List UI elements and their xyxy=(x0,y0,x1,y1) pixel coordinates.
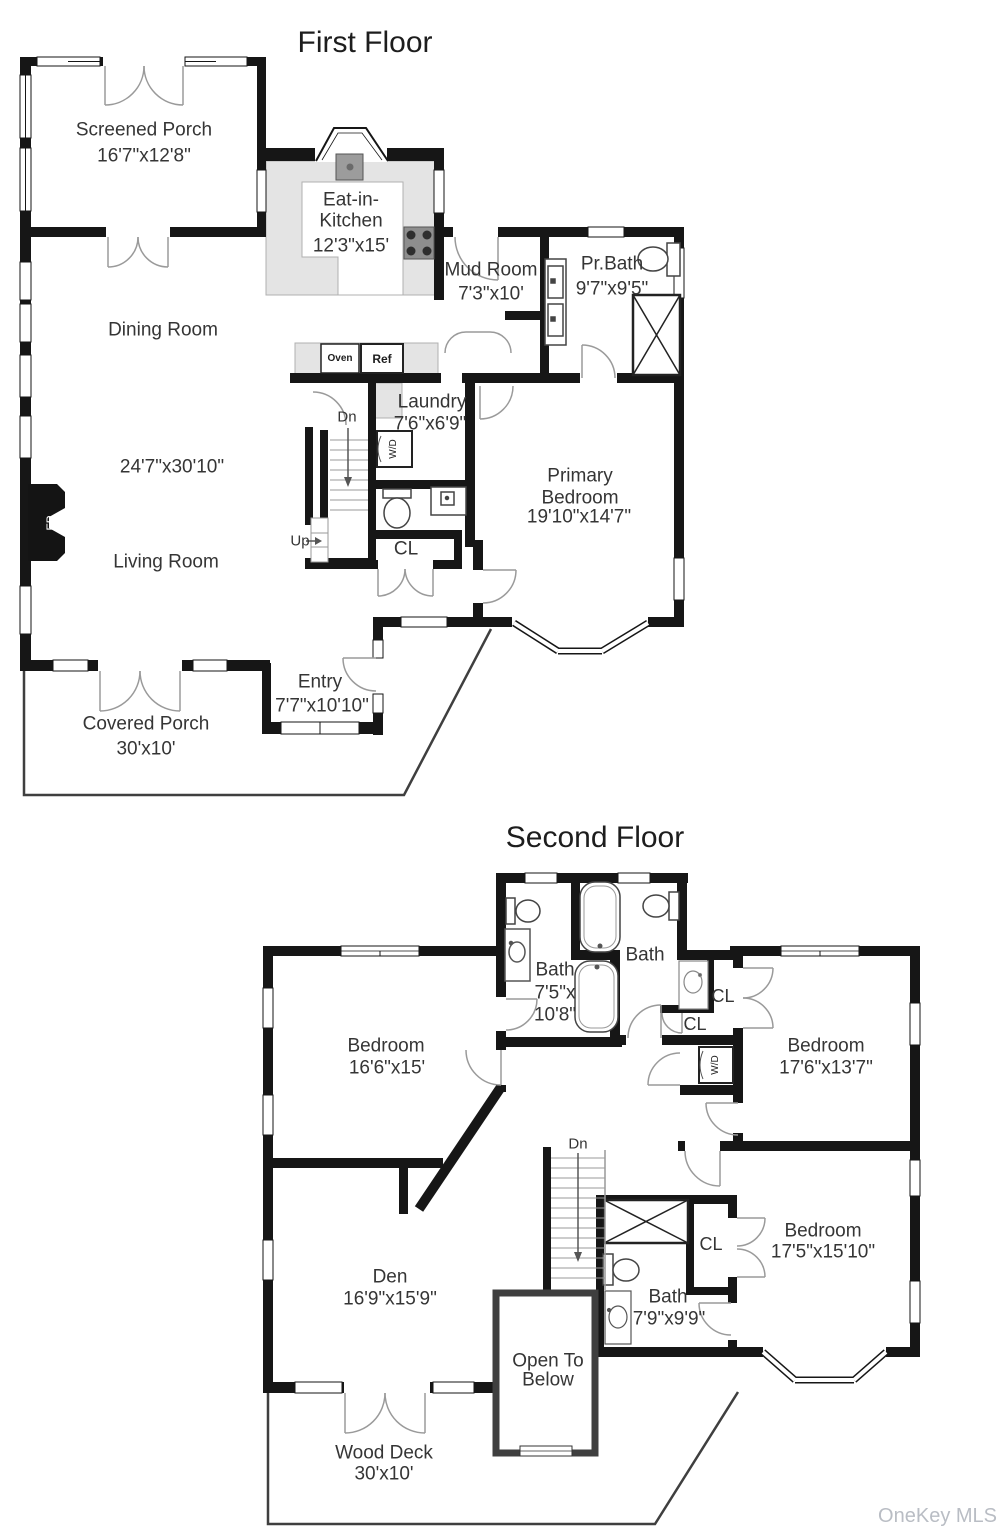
bedroom3-label: Bedroom xyxy=(784,1222,861,1241)
closet-label-first: CL xyxy=(394,540,418,559)
oven-label: Oven xyxy=(327,354,352,364)
den-label: Den xyxy=(373,1268,408,1287)
closet-label-c: CL xyxy=(699,1235,722,1253)
washer-dryer-label-second: W/D xyxy=(711,1055,721,1074)
watermark: OneKey MLS xyxy=(878,1506,997,1526)
covered-porch-outline xyxy=(24,629,491,795)
closet-label-b: CL xyxy=(683,1015,706,1033)
entry-label: Entry xyxy=(298,673,342,692)
bath1-tub-icon xyxy=(575,961,618,1032)
bath3-toilet-icon xyxy=(603,1254,639,1285)
stairs-down-label-first: Dn xyxy=(337,410,356,425)
bedroom2-dims: 17'6"x13'7" xyxy=(779,1059,873,1078)
bath1-dims-line2: 10'8" xyxy=(534,1006,576,1025)
second-floor-title: Second Floor xyxy=(506,823,684,853)
wood-deck-dims: 30'x10' xyxy=(354,1465,413,1484)
second-floor xyxy=(263,873,920,1524)
covered-porch-label: Covered Porch xyxy=(83,715,210,734)
den-dims: 16'9"x15'9" xyxy=(343,1290,437,1309)
screened-porch-label: Screened Porch xyxy=(76,121,212,140)
primary-bath-dims: 9'7"x9'5" xyxy=(576,280,649,299)
bedroom2-label: Bedroom xyxy=(787,1037,864,1056)
wood-deck-label: Wood Deck xyxy=(335,1444,433,1463)
washer-dryer-label-first: W/D xyxy=(389,439,399,458)
fireplace-label: FP xyxy=(45,515,57,530)
bath3-sink-icon xyxy=(605,1291,631,1344)
stairs-down-label-second: Dn xyxy=(568,1137,587,1152)
covered-porch-dims: 30'x10' xyxy=(116,740,175,759)
bedroom1-dims: 16'6"x15' xyxy=(349,1059,425,1078)
bay-window-bedroom3 xyxy=(763,1352,886,1380)
bath3-shower-icon xyxy=(604,1200,688,1243)
hall-sink-icon xyxy=(679,961,708,1009)
bedroom1-angled-wall xyxy=(419,1087,501,1209)
entry-dims: 7'7"x10'10" xyxy=(275,697,369,716)
bedroom3-dims: 17'5"x15'10" xyxy=(771,1243,875,1262)
closet-label-a: CL xyxy=(711,987,734,1005)
half-bath-sink-icon xyxy=(431,487,466,515)
laundry-label: Laundry xyxy=(398,393,467,412)
first-floor-title: First Floor xyxy=(298,28,433,58)
bath1-toilet-icon xyxy=(506,898,540,924)
primary-bath-vanity-icon xyxy=(545,259,566,345)
mud-room-label: Mud Room xyxy=(445,261,538,280)
laundry-dims: 7'6"x6'9" xyxy=(394,415,467,434)
kitchen-label-line1: Eat-in- xyxy=(323,191,379,210)
floor-plan-drawing xyxy=(0,0,1006,1536)
kitchen-dims: 12'3"x15' xyxy=(313,237,389,256)
bath3-label: Bath xyxy=(648,1288,687,1307)
mud-room-dims: 7'3"x10' xyxy=(458,285,524,304)
stairs-first-floor xyxy=(306,428,368,562)
primary-bath-label: Pr.Bath xyxy=(581,255,643,274)
primary-bedroom-label-line2: Bedroom xyxy=(541,489,618,508)
bath2-label: Bath xyxy=(625,946,664,965)
living-room-label: Living Room xyxy=(113,553,219,572)
open-to-below-line1: Open To xyxy=(512,1352,583,1371)
primary-bedroom-dims: 19'10"x14'7" xyxy=(527,508,631,527)
bath1-dims-line1: 7'5"x xyxy=(534,984,575,1003)
half-bath-toilet-icon xyxy=(383,489,411,528)
dining-room-label: Dining Room xyxy=(108,321,218,340)
floor-plan-page: First Floor Screened Porch 16'7"x12'8" E… xyxy=(0,0,1006,1536)
bath3-dims: 7'9"x9'9" xyxy=(633,1310,706,1329)
bath2-toilet-icon xyxy=(643,892,679,920)
stairs-up-label-first: Up xyxy=(290,534,309,549)
primary-shower-icon xyxy=(633,295,680,375)
bath1-vanity-icon xyxy=(505,929,530,981)
primary-bath-toilet-icon xyxy=(638,243,680,276)
kitchen-label-line2: Kitchen xyxy=(319,212,382,231)
screened-porch-dims: 16'7"x12'8" xyxy=(97,147,191,166)
ref-label: Ref xyxy=(372,353,391,365)
kitchen-sink-icon xyxy=(336,154,363,180)
stove-icon xyxy=(404,227,434,259)
living-dining-dims: 24'7"x30'10" xyxy=(120,458,224,477)
bedroom1-label: Bedroom xyxy=(347,1037,424,1056)
bath2-tub-icon xyxy=(580,882,620,952)
primary-bedroom-label-line1: Primary xyxy=(547,467,612,486)
bath1-label: Bath xyxy=(535,961,574,980)
open-to-below-line2: Below xyxy=(522,1371,574,1390)
